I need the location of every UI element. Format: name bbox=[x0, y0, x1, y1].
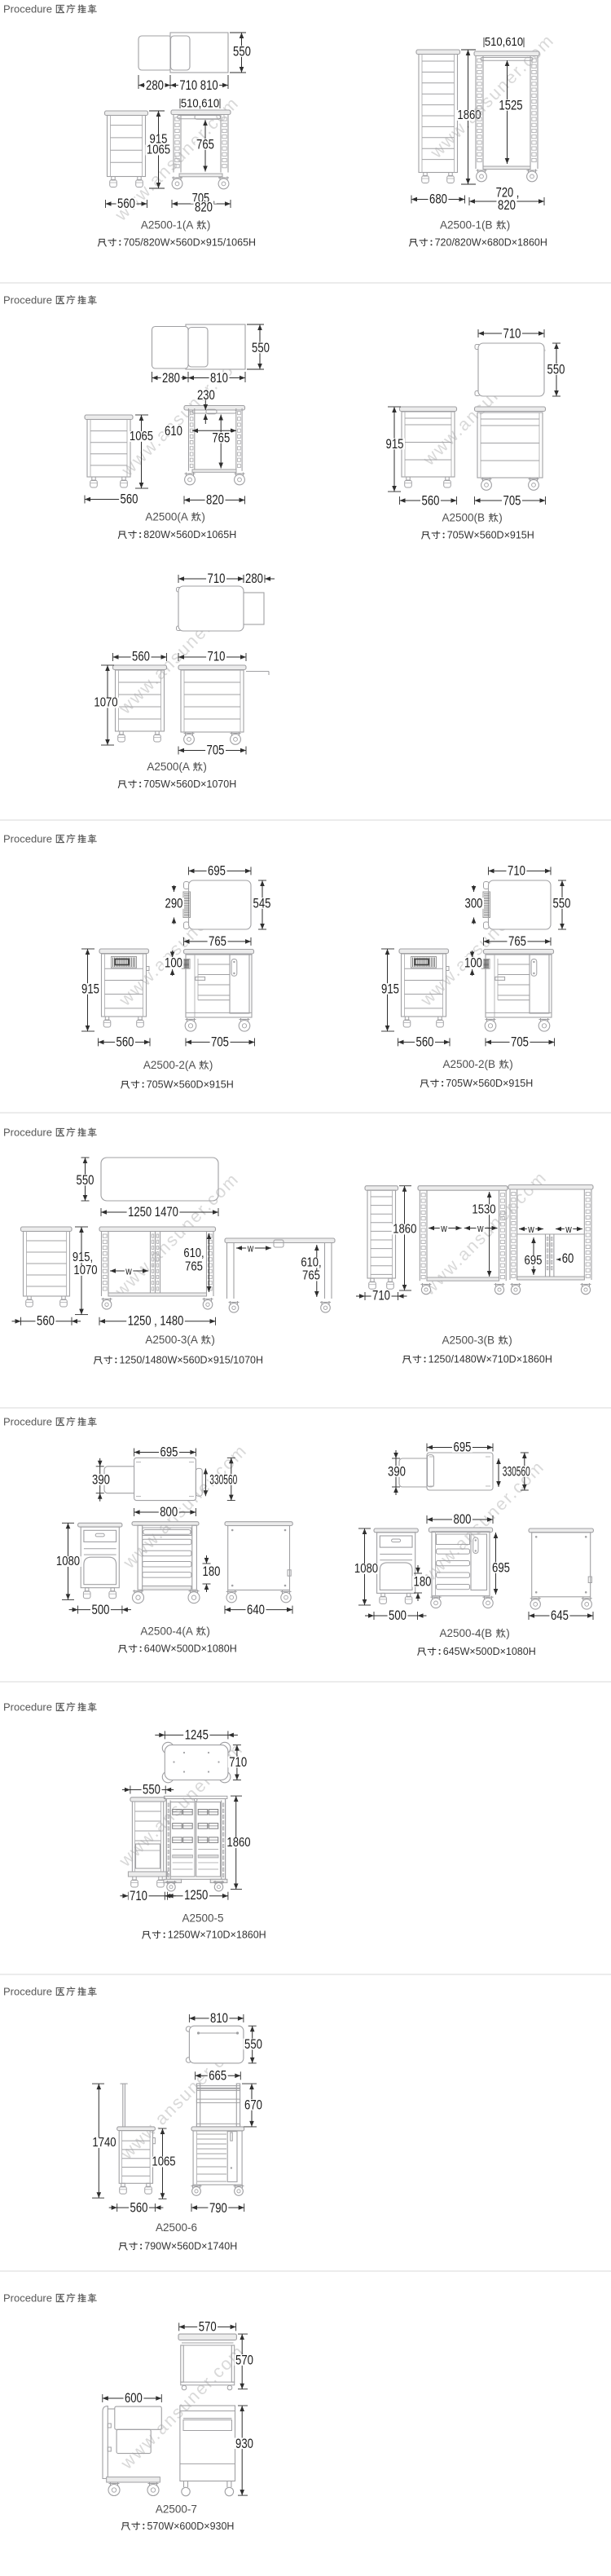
svg-text:A2500(A: A2500(A bbox=[145, 511, 188, 523]
svg-text:640: 640 bbox=[247, 1602, 265, 1617]
svg-text:510,610: 510,610 bbox=[485, 35, 523, 49]
svg-text:w: w bbox=[565, 1223, 572, 1235]
svg-text:): ) bbox=[207, 219, 211, 232]
svg-text:): ) bbox=[203, 761, 207, 773]
svg-text:w: w bbox=[247, 1242, 254, 1254]
svg-text:280: 280 bbox=[245, 571, 263, 586]
svg-text:300: 300 bbox=[465, 896, 483, 911]
svg-text:1250/1480W×560D×915/1070H: 1250/1480W×560D×915/1070H bbox=[119, 1355, 263, 1366]
svg-text:810: 810 bbox=[210, 370, 228, 386]
svg-text:930: 930 bbox=[235, 2436, 253, 2451]
svg-text:): ) bbox=[209, 1059, 213, 1071]
svg-text:Procedure: Procedure bbox=[3, 1986, 52, 1998]
svg-text:A2500-2(A: A2500-2(A bbox=[143, 1059, 196, 1071]
svg-text:1065: 1065 bbox=[152, 2155, 175, 2169]
svg-text:180: 180 bbox=[414, 1574, 432, 1590]
svg-text:550: 550 bbox=[252, 340, 270, 355]
svg-text:765: 765 bbox=[209, 933, 226, 949]
svg-text:Procedure: Procedure bbox=[3, 294, 52, 307]
svg-text:570: 570 bbox=[235, 2353, 253, 2368]
svg-text:705: 705 bbox=[511, 1034, 529, 1050]
svg-text:695: 695 bbox=[525, 1254, 543, 1268]
svg-text:): ) bbox=[499, 512, 503, 524]
svg-text:670: 670 bbox=[244, 2097, 262, 2112]
svg-text:1530: 1530 bbox=[472, 1202, 495, 1216]
svg-text:550: 550 bbox=[244, 2036, 262, 2052]
svg-text:510,610: 510,610 bbox=[181, 97, 219, 111]
svg-text:710: 710 bbox=[130, 1888, 147, 1903]
svg-text:): ) bbox=[508, 1334, 512, 1347]
svg-text:710 810: 710 810 bbox=[179, 77, 218, 93]
svg-text:A2500-7: A2500-7 bbox=[156, 2503, 197, 2516]
svg-text:665: 665 bbox=[209, 2068, 226, 2084]
svg-text:1740: 1740 bbox=[92, 2136, 116, 2150]
svg-text:): ) bbox=[506, 1627, 510, 1639]
svg-text:Procedure: Procedure bbox=[3, 2292, 52, 2305]
svg-text:915: 915 bbox=[386, 436, 404, 452]
svg-text:680: 680 bbox=[429, 192, 447, 207]
svg-text:560: 560 bbox=[130, 2199, 148, 2215]
svg-text:765: 765 bbox=[508, 933, 526, 949]
svg-text:100: 100 bbox=[464, 955, 482, 970]
svg-text:390: 390 bbox=[92, 1472, 110, 1488]
svg-text:695: 695 bbox=[454, 1440, 472, 1455]
svg-text:280: 280 bbox=[162, 370, 180, 386]
svg-text:545: 545 bbox=[253, 896, 271, 911]
svg-text:Procedure: Procedure bbox=[3, 1416, 52, 1428]
svg-text:800: 800 bbox=[160, 1504, 178, 1520]
svg-text:765: 765 bbox=[196, 137, 214, 152]
svg-text:500: 500 bbox=[389, 1608, 407, 1623]
svg-text:A2500(B: A2500(B bbox=[442, 512, 485, 524]
svg-text:600: 600 bbox=[125, 2390, 143, 2406]
svg-text:705: 705 bbox=[211, 1034, 229, 1050]
svg-text:810: 810 bbox=[210, 2010, 228, 2026]
svg-text:A2500-4(A: A2500-4(A bbox=[140, 1625, 193, 1638]
svg-text:Procedure: Procedure bbox=[3, 1127, 52, 1139]
svg-text:1065: 1065 bbox=[130, 430, 153, 443]
svg-text:): ) bbox=[509, 1058, 513, 1070]
svg-text:560: 560 bbox=[117, 196, 135, 211]
svg-text:): ) bbox=[206, 1625, 210, 1638]
svg-text:710: 710 bbox=[229, 1754, 247, 1770]
svg-text:820: 820 bbox=[195, 200, 213, 215]
svg-text:): ) bbox=[211, 1334, 215, 1346]
svg-text:180: 180 bbox=[203, 1564, 221, 1579]
svg-text:1525: 1525 bbox=[499, 98, 522, 113]
svg-text:280: 280 bbox=[146, 77, 164, 93]
svg-text:915,: 915, bbox=[73, 1251, 93, 1264]
svg-text:1250/1480W×710D×1860H: 1250/1480W×710D×1860H bbox=[429, 1354, 552, 1365]
svg-text:Procedure: Procedure bbox=[3, 1701, 52, 1714]
svg-text:1070: 1070 bbox=[73, 1264, 97, 1277]
svg-text:550: 550 bbox=[77, 1172, 95, 1188]
svg-text:820W×560D×1065H: 820W×560D×1065H bbox=[143, 529, 236, 540]
svg-text:790: 790 bbox=[209, 2200, 227, 2216]
svg-text:765: 765 bbox=[212, 430, 230, 445]
svg-text:710: 710 bbox=[503, 326, 521, 342]
svg-text:710: 710 bbox=[208, 649, 226, 664]
svg-text:570: 570 bbox=[199, 2319, 217, 2335]
svg-text:A2500-6: A2500-6 bbox=[156, 2221, 197, 2234]
svg-text:710: 710 bbox=[372, 1288, 390, 1303]
svg-text:1080: 1080 bbox=[354, 1562, 378, 1576]
svg-text:Procedure: Procedure bbox=[3, 3, 52, 15]
svg-text:550: 550 bbox=[553, 896, 571, 911]
svg-text:1250 1470: 1250 1470 bbox=[128, 1204, 178, 1220]
svg-text:A2500-1(B: A2500-1(B bbox=[440, 219, 493, 232]
svg-text:290: 290 bbox=[165, 896, 183, 911]
svg-text:A2500-5: A2500-5 bbox=[182, 1912, 223, 1925]
svg-text:705W×560D×915H: 705W×560D×915H bbox=[446, 1078, 533, 1089]
svg-text:560: 560 bbox=[116, 1034, 134, 1050]
svg-text:645W×500D×1080H: 645W×500D×1080H bbox=[443, 1646, 536, 1657]
svg-text:800: 800 bbox=[454, 1511, 472, 1527]
svg-text:1065: 1065 bbox=[147, 143, 170, 157]
svg-text:): ) bbox=[201, 511, 205, 523]
svg-text:705: 705 bbox=[207, 743, 225, 758]
svg-text:705: 705 bbox=[503, 493, 521, 509]
svg-text:560: 560 bbox=[121, 491, 138, 506]
svg-text:705W×560D×915H: 705W×560D×915H bbox=[147, 1079, 234, 1091]
svg-text:Procedure: Procedure bbox=[3, 833, 52, 845]
svg-text:570W×600D×930H: 570W×600D×930H bbox=[147, 2521, 234, 2532]
svg-text:695: 695 bbox=[492, 1560, 510, 1576]
svg-text:820: 820 bbox=[498, 197, 516, 213]
svg-text:640W×500D×1080H: 640W×500D×1080H bbox=[144, 1643, 237, 1655]
svg-text:w: w bbox=[527, 1223, 534, 1235]
svg-text:915: 915 bbox=[81, 981, 99, 997]
svg-text:560: 560 bbox=[37, 1313, 55, 1329]
svg-text:765: 765 bbox=[302, 1269, 320, 1283]
svg-text:610,: 610, bbox=[183, 1246, 204, 1260]
svg-text:645: 645 bbox=[551, 1608, 569, 1623]
svg-text:A2500(A: A2500(A bbox=[147, 761, 190, 773]
svg-text:560: 560 bbox=[132, 649, 150, 664]
svg-text:550: 550 bbox=[143, 1782, 160, 1797]
svg-text:230: 230 bbox=[197, 387, 215, 403]
svg-text:695: 695 bbox=[160, 1445, 178, 1460]
svg-text:500: 500 bbox=[92, 1602, 110, 1617]
svg-text:w: w bbox=[125, 1265, 132, 1277]
svg-text:710: 710 bbox=[508, 863, 525, 879]
svg-text:1860: 1860 bbox=[393, 1223, 416, 1237]
svg-text:720/820W×680D×1860H: 720/820W×680D×1860H bbox=[435, 237, 547, 249]
svg-text:1070: 1070 bbox=[94, 696, 117, 710]
svg-text:705W×560D×1070H: 705W×560D×1070H bbox=[143, 779, 236, 790]
svg-text:695: 695 bbox=[208, 863, 226, 879]
svg-text:820: 820 bbox=[206, 492, 224, 508]
svg-text:A2500-2(B: A2500-2(B bbox=[442, 1058, 495, 1070]
svg-text:): ) bbox=[507, 219, 511, 232]
svg-text:A2500-3(B: A2500-3(B bbox=[442, 1334, 495, 1347]
svg-text:330560: 330560 bbox=[503, 1464, 530, 1480]
svg-text:560: 560 bbox=[422, 493, 440, 509]
svg-text:1250 , 1480: 1250 , 1480 bbox=[128, 1313, 184, 1329]
svg-text:1080: 1080 bbox=[56, 1555, 80, 1568]
svg-text:w: w bbox=[440, 1222, 447, 1234]
svg-text:1250: 1250 bbox=[184, 1887, 208, 1903]
svg-text:100: 100 bbox=[165, 955, 182, 970]
svg-text:330560: 330560 bbox=[209, 1472, 237, 1488]
svg-text:705/820W×560D×915/1065H: 705/820W×560D×915/1065H bbox=[123, 237, 256, 249]
svg-text:560: 560 bbox=[416, 1034, 434, 1050]
svg-text:550: 550 bbox=[233, 44, 251, 60]
svg-text:A2500-4(B: A2500-4(B bbox=[439, 1627, 492, 1639]
svg-text:1860: 1860 bbox=[457, 108, 481, 122]
svg-text:550: 550 bbox=[547, 362, 565, 377]
svg-text:765: 765 bbox=[185, 1260, 203, 1274]
svg-text:1245: 1245 bbox=[185, 1727, 209, 1743]
svg-text:1250W×710D×1860H: 1250W×710D×1860H bbox=[168, 1930, 266, 1941]
svg-text:915: 915 bbox=[381, 981, 399, 997]
svg-text:1860: 1860 bbox=[226, 1836, 250, 1850]
svg-text:w: w bbox=[477, 1222, 484, 1234]
svg-text:610,: 610, bbox=[301, 1256, 321, 1270]
svg-text:705W×560D×915H: 705W×560D×915H bbox=[447, 530, 534, 541]
svg-text:A2500-1(A: A2500-1(A bbox=[141, 219, 194, 232]
svg-text:60: 60 bbox=[562, 1251, 574, 1266]
svg-text:390: 390 bbox=[388, 1464, 406, 1480]
svg-text:710: 710 bbox=[208, 571, 226, 586]
svg-text:A2500-3(A: A2500-3(A bbox=[145, 1334, 198, 1346]
svg-text:790W×560D×1740H: 790W×560D×1740H bbox=[144, 2241, 237, 2252]
svg-text:610: 610 bbox=[165, 423, 182, 439]
